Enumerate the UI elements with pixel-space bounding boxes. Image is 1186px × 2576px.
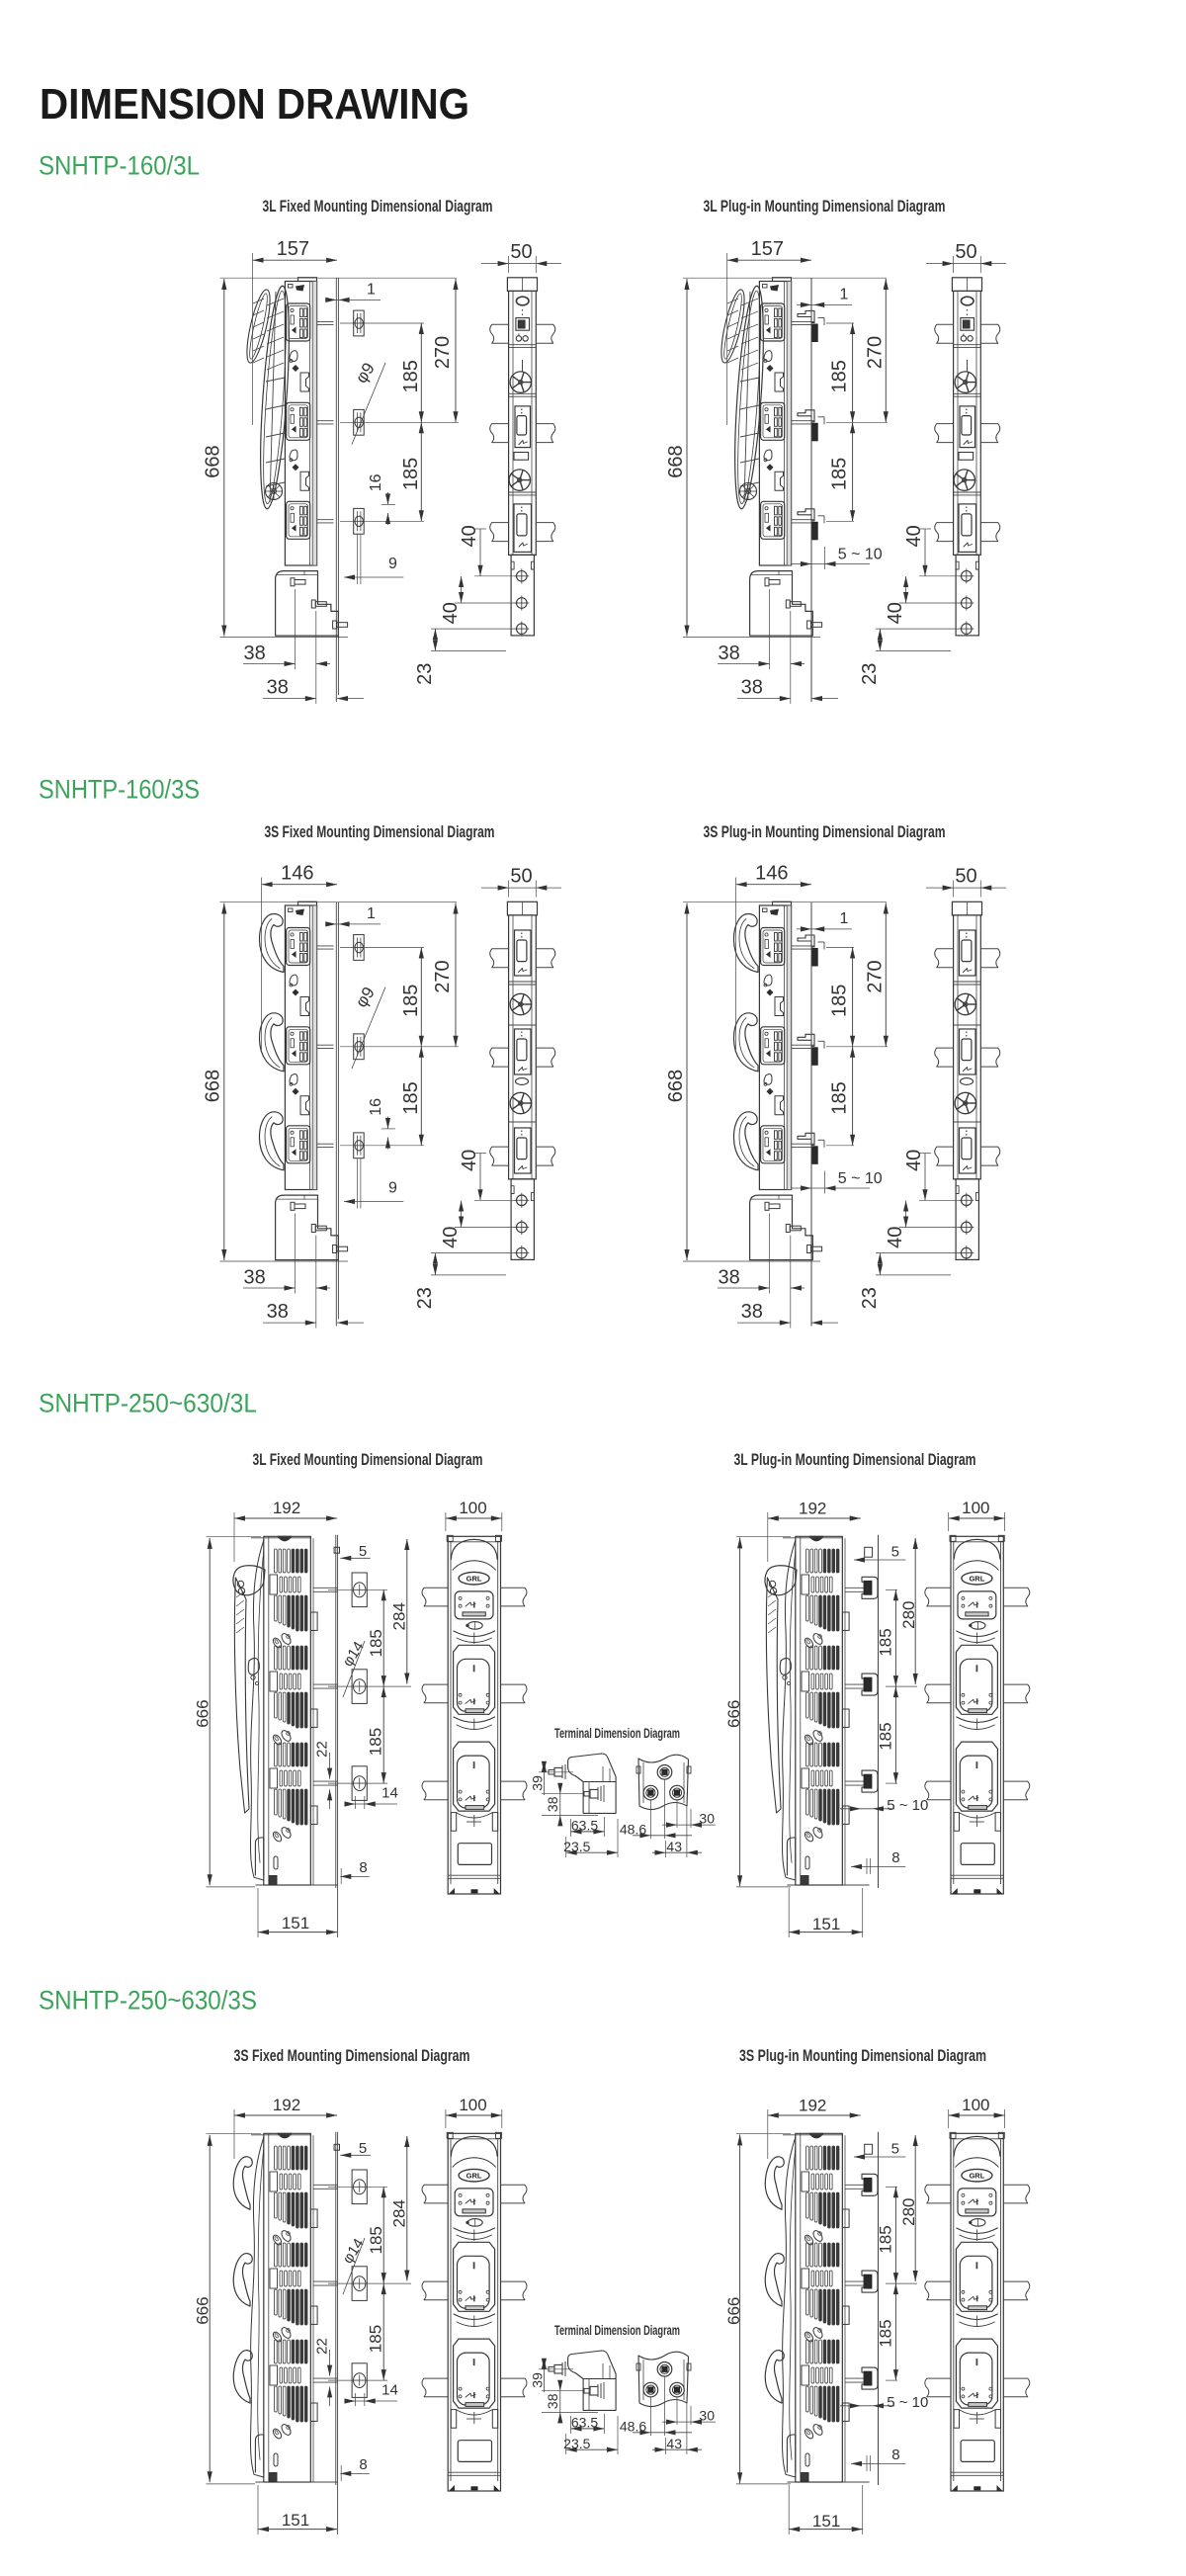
svg-text:185: 185 — [367, 2226, 385, 2254]
svg-text:SNHTP-160/3S: SNHTP-160/3S — [39, 774, 200, 804]
svg-text:666: 666 — [194, 1699, 212, 1727]
svg-text:284: 284 — [389, 2199, 408, 2227]
svg-text:38: 38 — [718, 1267, 739, 1289]
svg-text:192: 192 — [273, 1499, 300, 1517]
svg-text:668: 668 — [203, 445, 224, 477]
svg-text:39: 39 — [529, 1775, 545, 1791]
svg-text:185: 185 — [876, 1628, 894, 1656]
svg-text:50: 50 — [510, 241, 532, 263]
svg-text:185: 185 — [400, 985, 422, 1017]
svg-text:5 ~ 10: 5 ~ 10 — [887, 2394, 928, 2411]
svg-text:192: 192 — [273, 2096, 300, 2114]
svg-text:151: 151 — [812, 2512, 840, 2531]
svg-text:151: 151 — [812, 1915, 840, 1933]
svg-text:3L Plug-in Mounting Dimensiona: 3L Plug-in Mounting Dimensional Diagram — [734, 1450, 976, 1469]
svg-text:157: 157 — [751, 238, 784, 260]
svg-text:1: 1 — [367, 282, 376, 299]
svg-text:185: 185 — [367, 1728, 385, 1756]
svg-text:5: 5 — [891, 2141, 899, 2158]
svg-text:157: 157 — [277, 238, 309, 260]
svg-text:151: 151 — [282, 1914, 309, 1932]
svg-text:151: 151 — [282, 2511, 309, 2530]
svg-text:5: 5 — [891, 1544, 899, 1561]
svg-text:GRL: GRL — [969, 2171, 984, 2180]
svg-text:23: 23 — [859, 663, 881, 685]
svg-text:668: 668 — [203, 1070, 224, 1102]
svg-text:23.5: 23.5 — [563, 2436, 590, 2451]
svg-text:5 ~ 10: 5 ~ 10 — [887, 1797, 928, 1814]
svg-text:39: 39 — [529, 2372, 545, 2388]
svg-text:38: 38 — [741, 677, 763, 699]
svg-text:185: 185 — [876, 1722, 894, 1750]
svg-text:185: 185 — [400, 1081, 422, 1114]
svg-text:185: 185 — [876, 2319, 894, 2347]
svg-text:23: 23 — [859, 1287, 881, 1309]
svg-text:38: 38 — [243, 1267, 265, 1289]
svg-text:16: 16 — [368, 1098, 384, 1116]
svg-text:1: 1 — [840, 287, 849, 303]
svg-text:3S Plug-in Mounting Dimensiona: 3S Plug-in Mounting Dimensional Diagram — [704, 822, 946, 841]
svg-text:38: 38 — [545, 1796, 560, 1812]
svg-text:38: 38 — [545, 2393, 560, 2409]
svg-text:40: 40 — [885, 1227, 906, 1248]
svg-text:SNHTP-250~630/3L: SNHTP-250~630/3L — [39, 1388, 257, 1417]
svg-text:43: 43 — [666, 2436, 682, 2451]
svg-text:5: 5 — [359, 2140, 367, 2157]
svg-text:3S Fixed Mounting Dimensional: 3S Fixed Mounting Dimensional Diagram — [234, 2046, 470, 2065]
svg-text:270: 270 — [432, 960, 454, 992]
svg-text:185: 185 — [829, 458, 851, 490]
svg-text:185: 185 — [829, 985, 851, 1017]
svg-text:3S Fixed Mounting Dimensional: 3S Fixed Mounting Dimensional Diagram — [265, 822, 495, 841]
svg-text:14: 14 — [381, 1784, 398, 1801]
svg-text:3L Fixed Mounting Dimensional: 3L Fixed Mounting Dimensional Diagram — [263, 197, 493, 215]
svg-text:SNHTP-250~630/3S: SNHTP-250~630/3S — [39, 1985, 257, 2015]
svg-text:38: 38 — [267, 1301, 289, 1323]
svg-text:668: 668 — [665, 445, 687, 477]
svg-text:40: 40 — [885, 602, 906, 624]
svg-text:100: 100 — [459, 2096, 486, 2114]
svg-text:23: 23 — [414, 1287, 436, 1309]
svg-text:9: 9 — [388, 556, 397, 572]
svg-text:Terminal Dimension Diagram: Terminal Dimension Diagram — [554, 1726, 680, 1741]
svg-text:40: 40 — [903, 1150, 925, 1171]
svg-text:50: 50 — [955, 866, 976, 888]
svg-text:50: 50 — [955, 241, 976, 263]
svg-text:185: 185 — [367, 1629, 385, 1657]
svg-text:185: 185 — [400, 360, 422, 392]
svg-text:SNHTP-160/3L: SNHTP-160/3L — [39, 150, 200, 180]
svg-text:666: 666 — [194, 2296, 212, 2324]
svg-text:185: 185 — [400, 458, 422, 490]
svg-text:38: 38 — [718, 643, 739, 664]
svg-text:5: 5 — [359, 1543, 367, 1560]
svg-text:146: 146 — [755, 863, 788, 885]
svg-text:100: 100 — [459, 1499, 486, 1517]
svg-text:40: 40 — [459, 1150, 480, 1171]
svg-text:185: 185 — [367, 2325, 385, 2353]
svg-text:284: 284 — [389, 1602, 408, 1630]
svg-text:40: 40 — [903, 525, 925, 547]
svg-text:5 ~ 10: 5 ~ 10 — [838, 547, 883, 563]
svg-text:23.5: 23.5 — [563, 1839, 590, 1854]
svg-text:Terminal Dimension Diagram: Terminal Dimension Diagram — [554, 2323, 680, 2338]
svg-text:14: 14 — [381, 2381, 398, 2398]
svg-text:50: 50 — [510, 866, 532, 888]
svg-text:40: 40 — [440, 602, 462, 624]
svg-text:185: 185 — [829, 1081, 851, 1114]
svg-text:270: 270 — [865, 336, 887, 369]
svg-text:3L Plug-in Mounting Dimensiona: 3L Plug-in Mounting Dimensional Diagram — [704, 197, 946, 215]
svg-text:8: 8 — [359, 2456, 367, 2473]
svg-text:23: 23 — [414, 663, 436, 685]
svg-text:1: 1 — [840, 910, 849, 927]
svg-text:GRL: GRL — [466, 1574, 482, 1583]
svg-text:8: 8 — [891, 1849, 899, 1866]
svg-text:40: 40 — [459, 525, 480, 547]
svg-text:5 ~ 10: 5 ~ 10 — [838, 1170, 883, 1187]
svg-text:185: 185 — [829, 360, 851, 392]
svg-text:146: 146 — [281, 863, 313, 885]
svg-text:3S Plug-in Mounting Dimensiona: 3S Plug-in Mounting Dimensional Diagram — [739, 2046, 986, 2065]
svg-text:38: 38 — [267, 677, 289, 699]
svg-text:38: 38 — [741, 1301, 763, 1323]
svg-text:9: 9 — [388, 1179, 397, 1196]
svg-text:22: 22 — [314, 1741, 331, 1758]
svg-text:8: 8 — [891, 2447, 899, 2463]
svg-text:40: 40 — [440, 1227, 462, 1248]
svg-text:100: 100 — [962, 2096, 989, 2114]
svg-text:192: 192 — [799, 2097, 826, 2115]
svg-text:GRL: GRL — [969, 1574, 984, 1583]
svg-text:1: 1 — [367, 905, 376, 922]
svg-text:GRL: GRL — [466, 2171, 482, 2180]
svg-text:192: 192 — [799, 1500, 826, 1518]
svg-text:270: 270 — [865, 960, 887, 992]
svg-text:3L Fixed Mounting Dimensional: 3L Fixed Mounting Dimensional Diagram — [253, 1450, 483, 1469]
svg-text:16: 16 — [368, 473, 384, 491]
svg-text:8: 8 — [359, 1859, 367, 1876]
svg-text:38: 38 — [243, 643, 265, 664]
svg-text:270: 270 — [432, 336, 454, 369]
svg-text:DIMENSION DRAWING: DIMENSION DRAWING — [40, 80, 469, 129]
svg-text:100: 100 — [962, 1499, 989, 1517]
svg-text:43: 43 — [666, 1839, 682, 1854]
svg-text:668: 668 — [665, 1070, 687, 1102]
svg-text:185: 185 — [876, 2225, 894, 2253]
svg-text:22: 22 — [314, 2338, 331, 2355]
